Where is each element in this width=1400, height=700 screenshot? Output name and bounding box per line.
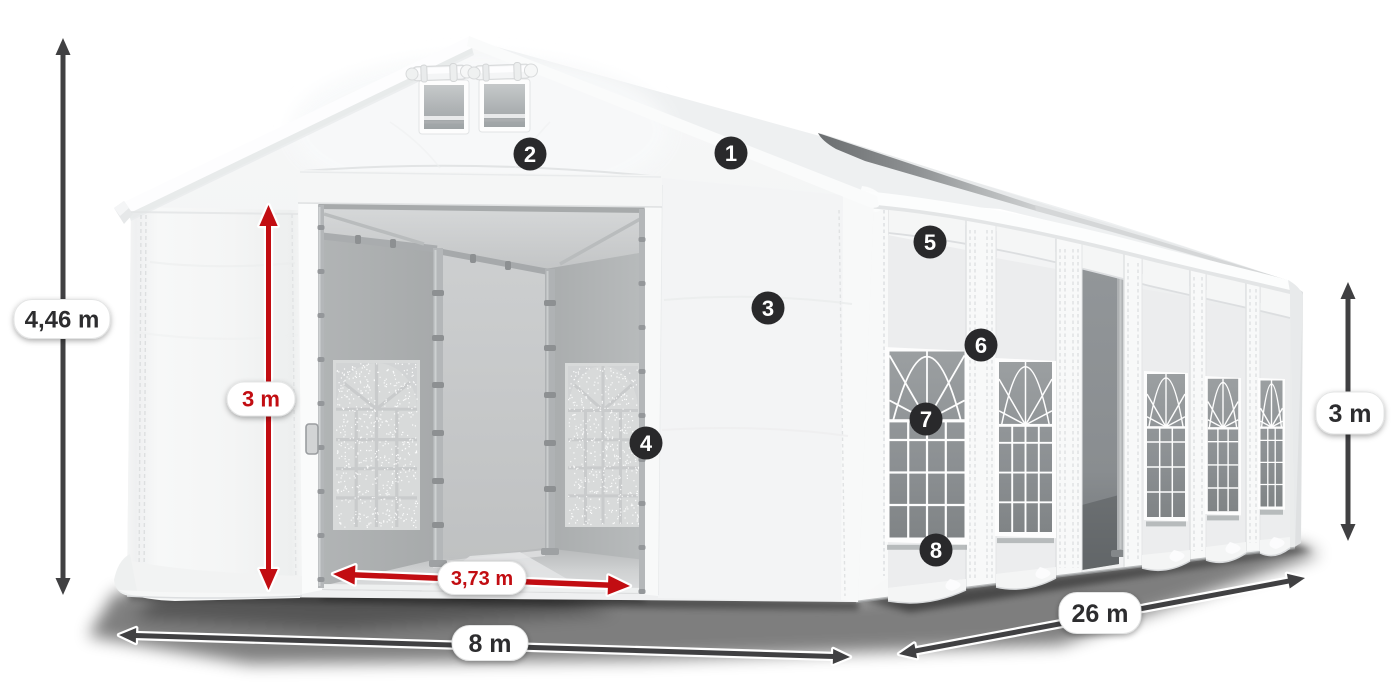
svg-text:4: 4 [640, 431, 653, 456]
svg-text:6: 6 [975, 333, 987, 358]
svg-text:3: 3 [762, 296, 774, 321]
svg-text:3 m: 3 m [242, 387, 280, 412]
svg-text:2: 2 [524, 142, 536, 167]
svg-text:8 m: 8 m [468, 630, 511, 658]
svg-text:3 m: 3 m [1328, 400, 1371, 428]
svg-text:26 m: 26 m [1072, 600, 1129, 628]
svg-text:4,46 m: 4,46 m [25, 306, 100, 333]
svg-text:1: 1 [725, 141, 737, 166]
svg-text:3,73 m: 3,73 m [451, 568, 513, 590]
svg-text:5: 5 [924, 230, 936, 255]
svg-text:7: 7 [920, 407, 932, 432]
svg-text:8: 8 [930, 538, 942, 563]
